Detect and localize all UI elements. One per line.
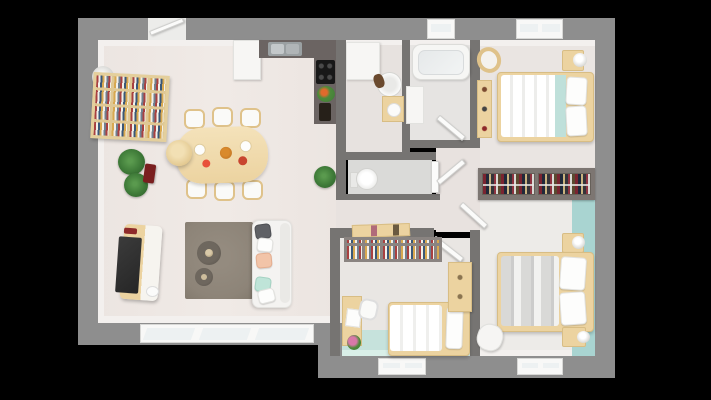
console-deco-red <box>124 228 137 235</box>
bedroom2-table-lamp <box>572 236 585 249</box>
hall-plant <box>314 166 336 188</box>
cooktop <box>316 60 335 84</box>
wall-face <box>480 40 595 46</box>
sofa-pillow-white <box>256 237 273 253</box>
wall-bath2-bottom <box>410 140 480 148</box>
table-knob <box>205 249 213 257</box>
dining-chair <box>240 108 261 128</box>
kids-wardrobe <box>448 262 472 312</box>
outer-wall-bottom-right <box>318 356 615 378</box>
fruit-bowl <box>220 147 232 159</box>
bedroom1-duvet <box>501 75 559 137</box>
potted-plant <box>118 149 145 175</box>
flower-vase <box>317 86 335 102</box>
bedroom2-pillow <box>559 256 587 291</box>
table-setting <box>238 156 247 165</box>
wardrobe-rack-clothes <box>538 173 591 195</box>
fridge-cabinet <box>233 40 261 80</box>
kids-flowers <box>347 335 361 350</box>
window-glass <box>542 24 560 32</box>
floorplan-scene <box>0 0 711 400</box>
outer-wall-right <box>595 18 615 378</box>
wall-kids-left <box>330 228 340 356</box>
window-glass <box>431 24 451 32</box>
outer-wall-left <box>78 18 98 345</box>
bedroom1-teal-runner <box>555 75 566 137</box>
kids-pillow <box>445 307 463 350</box>
kids-wall-bookshelf <box>344 237 442 262</box>
toilet-bowl <box>356 168 378 190</box>
kitchen-sink <box>268 42 302 56</box>
wardrobe-rack-frame <box>478 168 595 200</box>
tv <box>115 236 142 293</box>
bathtub-basin <box>418 50 464 75</box>
table-knob <box>201 274 207 280</box>
bookshelf <box>90 72 169 142</box>
window-glass <box>520 24 538 32</box>
window-glass <box>199 328 251 340</box>
kids-room-window <box>378 358 426 375</box>
sofa-pillow-peach <box>255 252 272 268</box>
window-glass <box>383 363 400 368</box>
dining-chair <box>242 180 263 200</box>
console-deco-white <box>146 286 159 297</box>
wc-door <box>431 161 439 193</box>
bedroom2-lamp-bottom <box>577 331 590 343</box>
bedroom1-shelf <box>477 80 492 138</box>
sink-basin <box>271 44 284 54</box>
window-glass <box>543 363 559 368</box>
pendant-lamp <box>166 140 192 166</box>
bedroom2-window <box>517 358 563 375</box>
table-setting <box>240 140 252 152</box>
dining-chair <box>214 181 235 201</box>
dining-chair <box>212 107 233 127</box>
bedroom1-pillow <box>565 105 588 136</box>
table-setting <box>194 144 206 156</box>
bedroom1-window <box>516 19 563 39</box>
coffee-table-small <box>195 268 213 286</box>
window-glass <box>143 328 195 340</box>
bedroom1-table-lamp <box>573 53 587 67</box>
kids-duvet <box>390 305 442 351</box>
bathtub <box>412 44 470 80</box>
wall-living-bath <box>336 40 346 198</box>
sofa-backrest <box>280 223 290 303</box>
table-setting <box>202 159 210 167</box>
bathtub-room-vanity <box>406 86 424 124</box>
wall-wc-bottom <box>336 194 440 200</box>
bathtub-room-window <box>427 19 455 39</box>
bedroom1-pillow <box>565 76 587 105</box>
kids-storage-box <box>352 223 410 238</box>
wall-face <box>98 316 336 323</box>
wine-bottles <box>319 103 331 121</box>
window-glass <box>405 363 422 368</box>
living-bay-windows <box>140 324 314 343</box>
wall-wc-top <box>336 152 436 160</box>
dining-chair <box>184 109 205 129</box>
window-glass <box>255 328 309 340</box>
coffee-table-large <box>197 241 221 265</box>
sink-basin <box>286 44 299 54</box>
bathroom-vanity <box>382 96 404 122</box>
window-glass <box>522 363 538 368</box>
vanity-bowl <box>387 103 401 117</box>
wardrobe-rack-clothes <box>482 173 535 195</box>
bedroom2-pillow <box>559 291 587 326</box>
rug <box>185 222 253 299</box>
bedroom2-duvet <box>501 256 559 326</box>
